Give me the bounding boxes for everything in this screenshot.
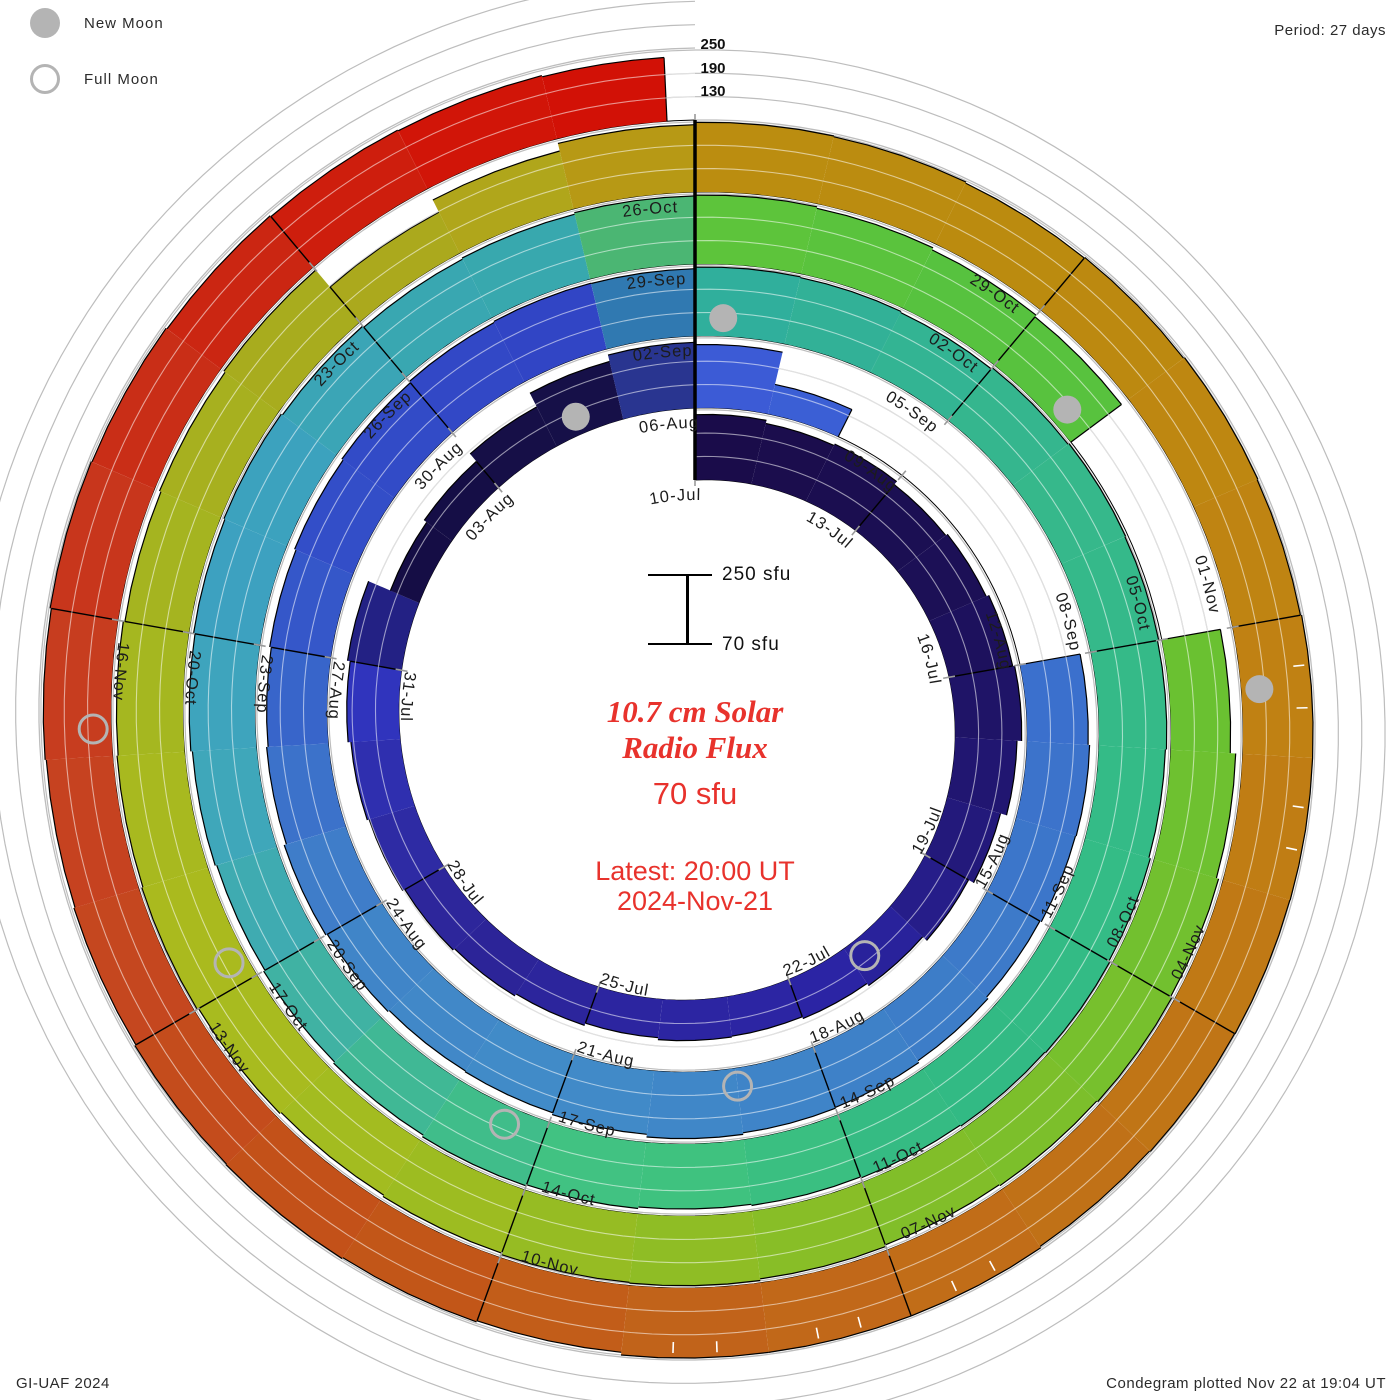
flux-bar: [1162, 629, 1231, 753]
scale-bar-stem: [686, 574, 689, 645]
chart-title-line2: Radio Flux: [420, 730, 970, 766]
full-moon-icon: [30, 64, 60, 94]
flux-bar: [727, 980, 802, 1037]
flux-bar: [658, 997, 732, 1041]
flux-bar: [1223, 754, 1312, 900]
legend-full-moon: Full Moon: [30, 64, 159, 94]
flux-bar: [695, 195, 817, 274]
flux-bar: [695, 267, 801, 344]
flux-bar: [695, 345, 783, 414]
full-moon-label: Full Moon: [84, 71, 159, 88]
flux-bar: [695, 122, 834, 203]
condegram-page: 10-Jul13-Jul16-Jul19-Jul22-Jul25-Jul28-J…: [0, 0, 1400, 1400]
flux-bar: [647, 1068, 744, 1138]
legend-new-moon: New Moon: [30, 8, 164, 38]
date-label-text: 06-Aug: [638, 414, 699, 437]
period-label: Period: 27 days: [1274, 22, 1386, 39]
flux-bar: [390, 522, 451, 603]
radial-axis-190: 190: [688, 60, 738, 77]
date-label-text: 10-Jul: [648, 486, 701, 508]
latest-time-label: Latest: 20:00 UT: [420, 856, 970, 886]
plotted-timestamp-label: Condegram plotted Nov 22 at 19:04 UT: [1106, 1375, 1386, 1392]
flux-bar: [621, 1283, 769, 1358]
flux-bar: [347, 661, 402, 742]
flux-bar: [1154, 750, 1236, 878]
center-annotation: 10.7 cm Solar Radio Flux 70 sfu Latest: …: [420, 694, 970, 916]
date-label-text: 31-Jul: [397, 670, 419, 722]
flux-bar: [267, 647, 331, 747]
overflow-mark: [1293, 665, 1304, 666]
flux-bar: [1091, 640, 1167, 749]
scale-bar-max-label: 250 sfu: [722, 564, 791, 586]
radial-axis-250: 250: [688, 36, 738, 53]
new-moon-label: New Moon: [84, 15, 164, 32]
new-moon-marker: [1245, 675, 1273, 703]
scale-bar-min-label: 70 sfu: [722, 634, 780, 656]
new-moon-marker: [709, 304, 737, 332]
flux-bar: [542, 58, 667, 139]
credit-label: GI-UAF 2024: [16, 1375, 110, 1392]
radial-axis-130: 130: [688, 83, 738, 100]
new-moon-marker: [1053, 396, 1081, 424]
scale-bar-bottom-cap: [648, 643, 712, 645]
date-label: 10-Jul: [648, 486, 701, 508]
latest-date-label: 2024-Nov-21: [420, 886, 970, 916]
flux-bar: [638, 1140, 751, 1209]
scale-bar-top-cap: [648, 574, 712, 576]
new-moon-icon: [30, 8, 60, 38]
flux-bar: [629, 1211, 760, 1285]
new-moon-marker: [562, 403, 590, 431]
date-label: 06-Aug: [638, 414, 699, 437]
flux-bar: [1020, 654, 1088, 745]
latest-flux-value: 70 sfu: [420, 776, 970, 812]
date-label-arc: [581, 500, 775, 532]
chart-title-line1: 10.7 cm Solar: [420, 694, 970, 730]
flux-bar: [558, 125, 695, 209]
date-label: 31-Jul: [397, 670, 419, 722]
